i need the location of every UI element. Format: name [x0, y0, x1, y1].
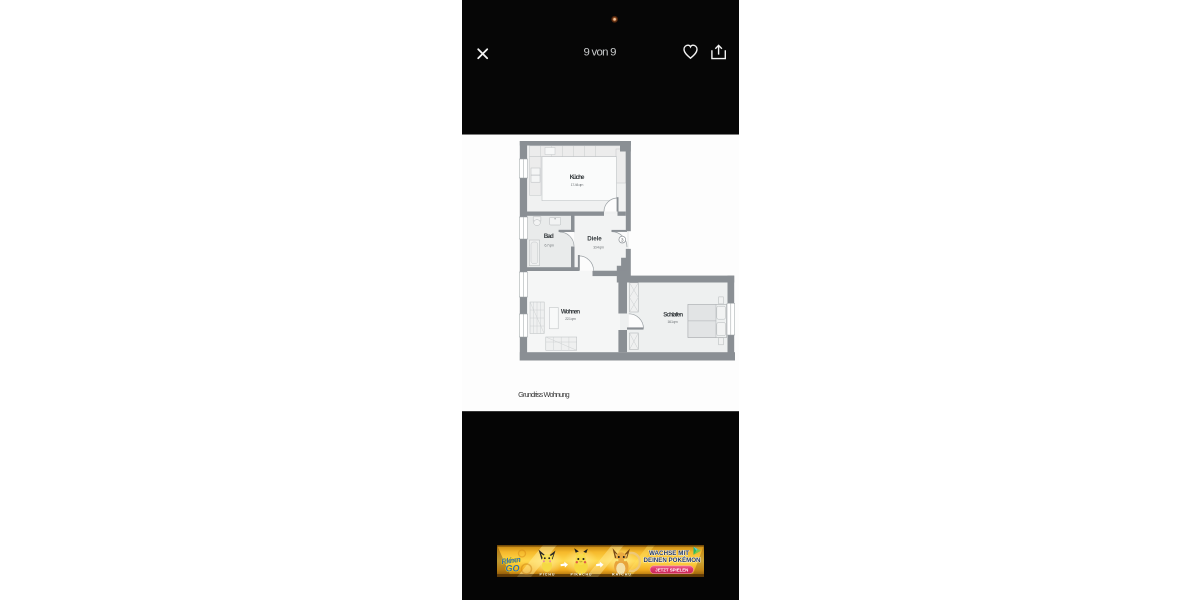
svg-text:3: 3	[621, 237, 624, 242]
svg-text:GO: GO	[505, 563, 519, 573]
svg-text:Küche: Küche	[570, 174, 585, 181]
svg-text:16.1 qm: 16.1 qm	[667, 320, 677, 324]
svg-text:RAICHU: RAICHU	[612, 572, 631, 576]
svg-text:Diele: Diele	[587, 235, 602, 242]
svg-text:Schlafen: Schlafen	[663, 312, 683, 319]
svg-text:Grundriss Wohnung: Grundriss Wohnung	[518, 390, 570, 399]
svg-text:DEINEN POKÉMON: DEINEN POKÉMON	[644, 556, 702, 564]
svg-text:Bad: Bad	[544, 233, 554, 240]
svg-text:PICHU: PICHU	[540, 572, 555, 576]
svg-text:JETZT SPIELEN: JETZT SPIELEN	[655, 568, 688, 573]
svg-text:PIKACHU: PIKACHU	[571, 572, 592, 576]
svg-text:6.7 qm: 6.7 qm	[544, 243, 554, 247]
svg-text:Wohnen: Wohnen	[561, 309, 580, 316]
svg-text:WACHSE MIT: WACHSE MIT	[649, 550, 689, 557]
svg-text:17.44 qm: 17.44 qm	[571, 183, 584, 187]
svg-text:10.4 qm: 10.4 qm	[593, 245, 604, 249]
svg-text:22.1 qm: 22.1 qm	[565, 317, 576, 321]
svg-text:9 von 9: 9 von 9	[584, 47, 617, 59]
